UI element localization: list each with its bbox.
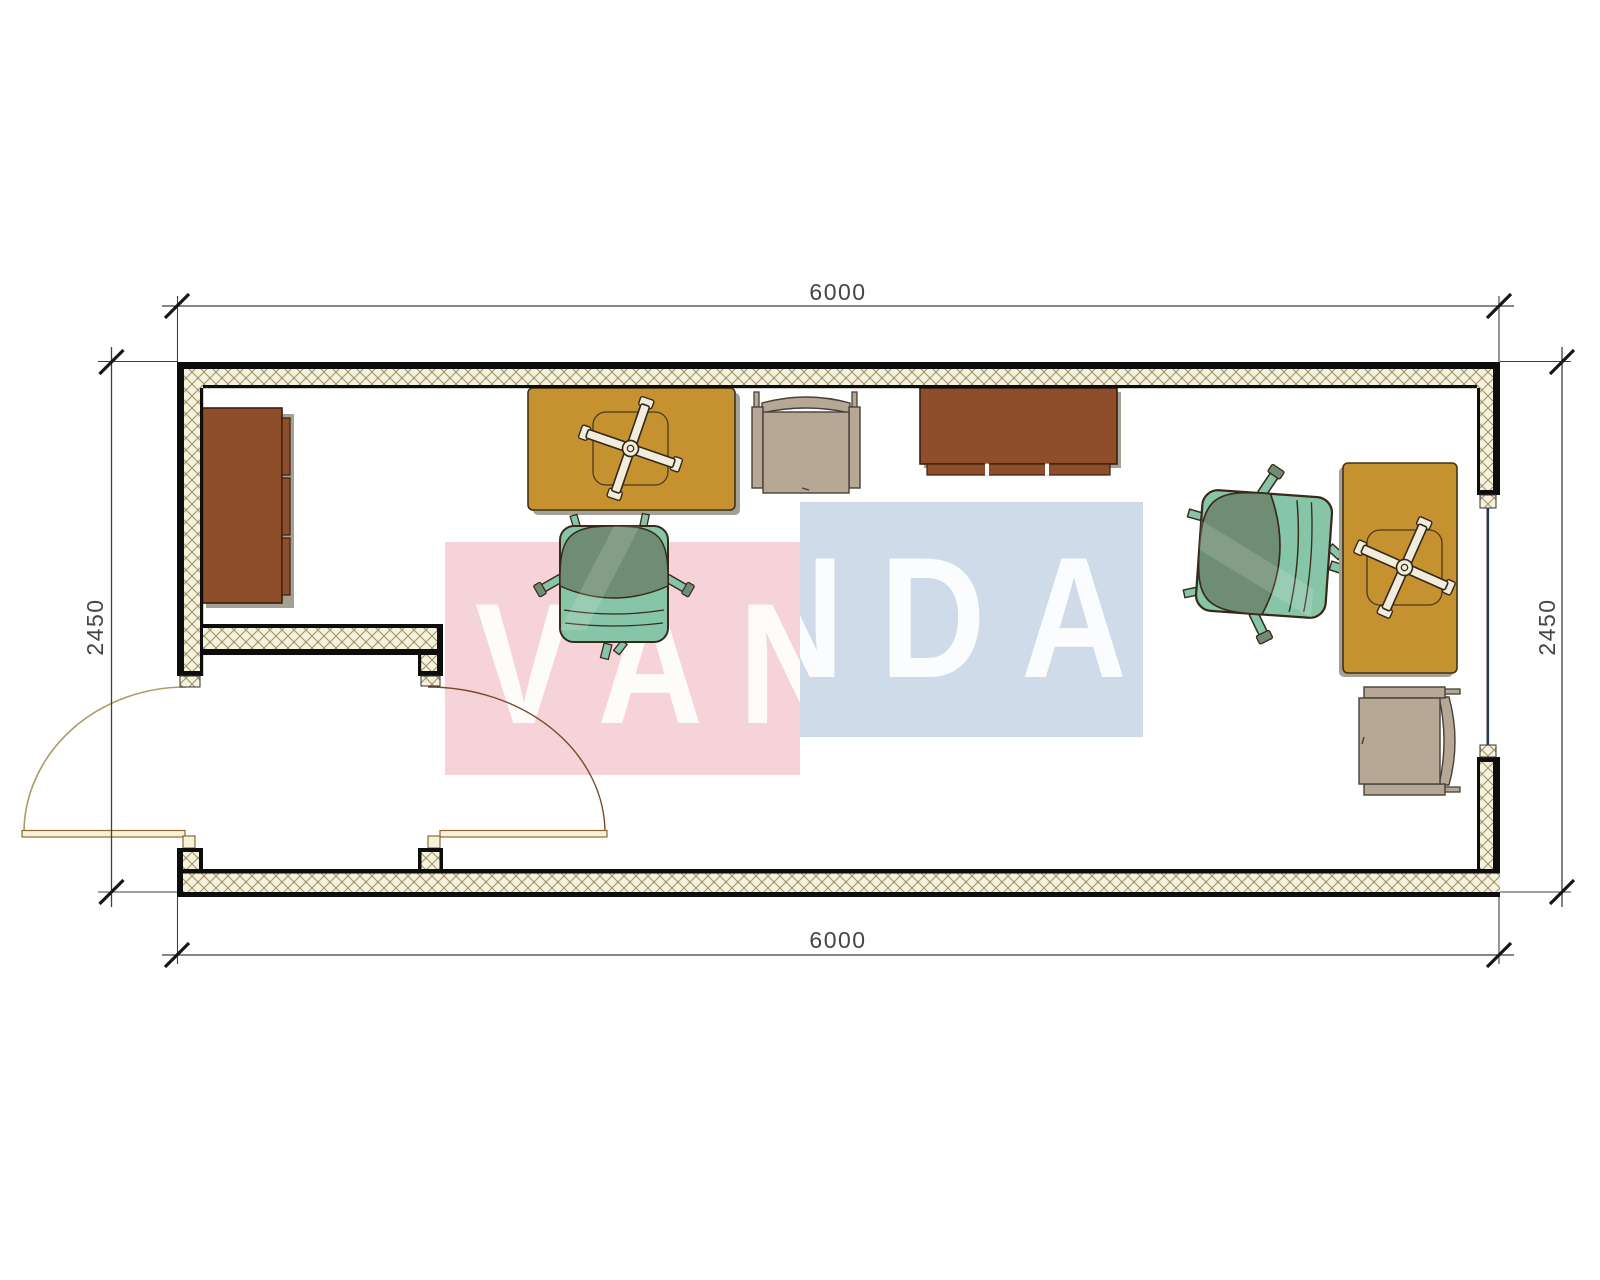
door-jamb-right <box>421 676 440 686</box>
dim-text-top: 6000 <box>809 279 866 305</box>
cabinet-top-center <box>920 388 1121 476</box>
wall-stub-left <box>177 848 203 869</box>
window-line <box>1487 508 1490 745</box>
window-jamb-bottom <box>1480 745 1496 757</box>
wall-stub-right <box>418 848 443 869</box>
door-leaf-left <box>22 831 185 838</box>
dim-text-right: 2450 <box>1534 598 1560 655</box>
desk-top-left <box>528 381 740 516</box>
cabinet-left <box>200 408 294 608</box>
door-hinge-right <box>428 836 440 848</box>
wall-top <box>177 362 1500 388</box>
door-hinge-left <box>183 836 195 848</box>
door-leaf-right <box>440 831 607 838</box>
cabinet-top-divider <box>1045 464 1049 476</box>
floor-plan-page: VANDA VANDA <box>0 0 1600 1280</box>
wall-right-upper <box>1477 362 1500 495</box>
floor-plan-canvas: VANDA VANDA <box>0 0 1600 1280</box>
wall-bottom <box>177 869 1500 897</box>
desk-right <box>1335 463 1475 677</box>
watermark: VANDA VANDA <box>445 502 1162 775</box>
dim-text-left: 2450 <box>82 598 108 655</box>
dim-text-bottom: 6000 <box>809 927 866 953</box>
wall-left <box>177 362 203 676</box>
armchair-bottom-right <box>1359 687 1460 795</box>
armchair-top-center <box>752 392 860 493</box>
door-jamb-left <box>180 676 200 687</box>
window-jamb-top <box>1480 495 1496 508</box>
cabinet-top-divider <box>985 464 989 476</box>
